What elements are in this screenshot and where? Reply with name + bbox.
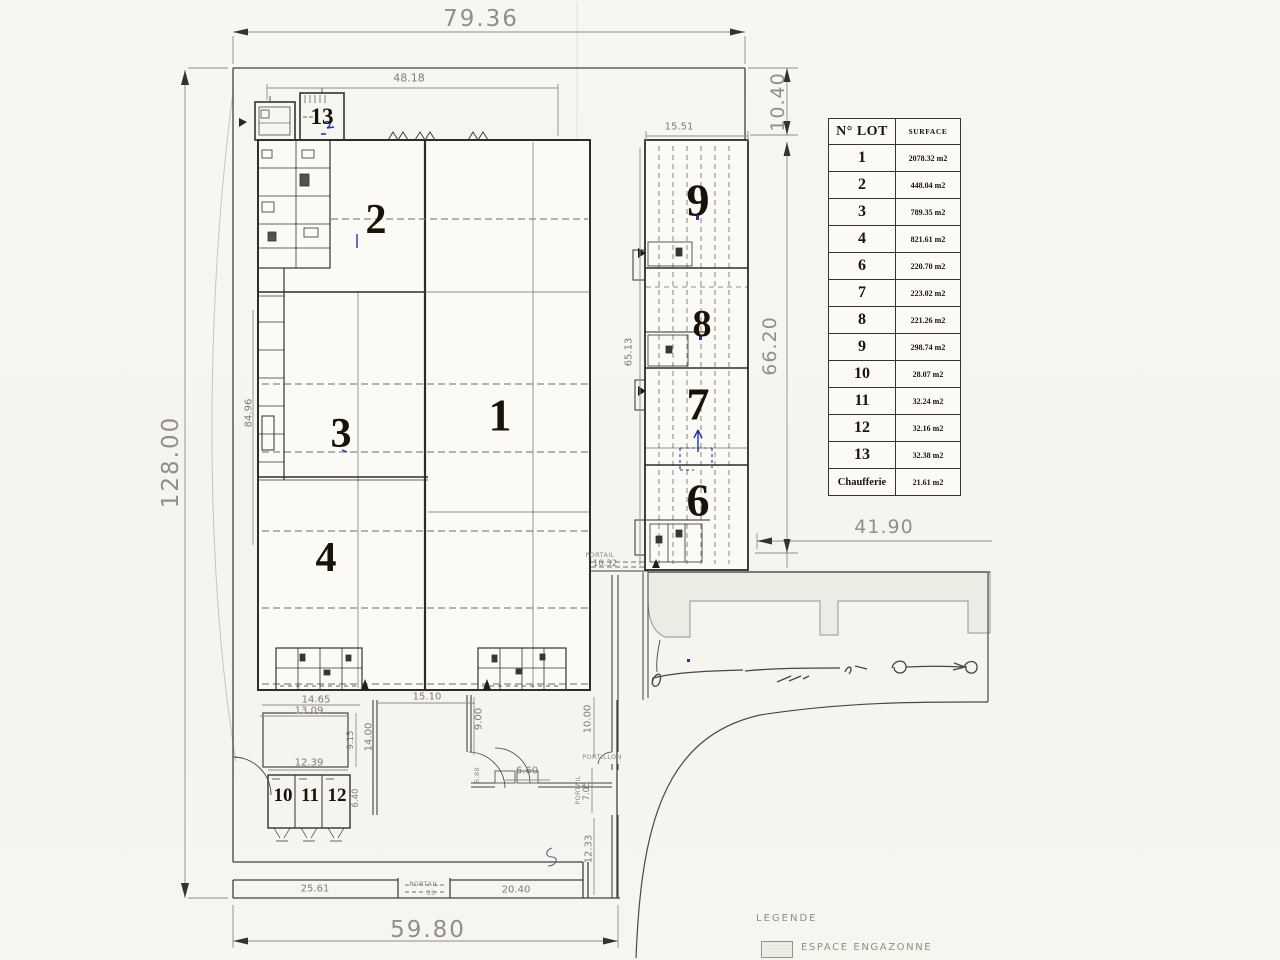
surface-cell: 2078.32 m2 <box>896 145 960 171</box>
lot-cell: 10 <box>829 361 896 387</box>
plan-lot-12: 12 <box>328 785 347 807</box>
legend-item-grass: ESPACE ENGAZONNE <box>801 942 932 953</box>
surface-table: N° LOT SURFACE 12078.32 m2 2448.04 m2 37… <box>828 118 961 496</box>
surface-cell: 32.38 m2 <box>896 442 960 468</box>
plan-lot-2: 2 <box>366 196 387 244</box>
lot-cell: 4 <box>829 226 896 252</box>
grass-strip <box>646 561 990 637</box>
lot-cell: 9 <box>829 334 896 360</box>
table-row: 8221.26 m2 <box>829 306 960 333</box>
dim-6-60: 6.60 <box>516 766 538 777</box>
lot-cell: 2 <box>829 172 896 198</box>
surface-cell: 221.26 m2 <box>896 307 960 333</box>
grass-swatch <box>761 941 793 958</box>
table-row: Chaufferie21.61 m2 <box>829 468 960 495</box>
dim-east-height: 66.20 <box>759 316 781 375</box>
label-portail-east: PORTAIL <box>585 551 614 559</box>
dim-0-35: 35 <box>426 889 435 897</box>
table-row: 3789.35 m2 <box>829 198 960 225</box>
surface-cell: 32.24 m2 <box>896 388 960 414</box>
scanned-site-plan: 79.36 128.00 59.80 10.40 66.20 41.90 48.… <box>0 0 1280 960</box>
dim-15-10: 15.10 <box>413 692 442 703</box>
plan-lot-11: 11 <box>301 785 319 807</box>
dim-bottom-width: 59.80 <box>390 917 466 943</box>
lot-cell: 12 <box>829 415 896 441</box>
dim-east-building-height: 65.13 <box>624 338 635 367</box>
surface-cell: 448.04 m2 <box>896 172 960 198</box>
table-row: 9298.74 m2 <box>829 333 960 360</box>
plan-lot-8: 8 <box>693 302 712 346</box>
lot-cell: 3 <box>829 199 896 225</box>
dim-7-05: 7.05 <box>582 782 592 801</box>
table-row: 6220.70 m2 <box>829 252 960 279</box>
plan-lot-9: 9 <box>687 174 710 227</box>
lot-cell: Chaufferie <box>829 469 896 495</box>
table-row: 1232.16 m2 <box>829 414 960 441</box>
label-portillon: PORTILLON <box>582 753 622 761</box>
dim-9-00: 9.00 <box>474 708 485 730</box>
surface-cell: 223.02 m2 <box>896 280 960 306</box>
surface-cell: 28.07 m2 <box>896 361 960 387</box>
surface-cell: 32.16 m2 <box>896 415 960 441</box>
lot-cell: 6 <box>829 253 896 279</box>
plan-lot-3: 3 <box>331 410 352 458</box>
dim-13-09: 13.09 <box>295 706 324 717</box>
garage-block <box>263 713 350 841</box>
table-row: 1028.07 m2 <box>829 360 960 387</box>
table-row: 12078.32 m2 <box>829 144 960 171</box>
dim-ne-setback: 10.40 <box>767 72 789 131</box>
label-portail-bottom: PORTAIL <box>409 880 438 888</box>
dim-west-building-height: 84.96 <box>244 399 255 428</box>
lot-cell: 13 <box>829 442 896 468</box>
lot-column-header: N° LOT <box>829 119 896 144</box>
table-row: 1332.38 m2 <box>829 441 960 468</box>
dim-left-height: 128.00 <box>158 416 184 508</box>
label-portail-south-gate: PORTAIL <box>574 775 582 804</box>
dim-top-width: 79.36 <box>443 6 519 32</box>
dim-6-40: 6.40 <box>351 789 361 808</box>
chaufferie-building <box>239 96 295 140</box>
dim-14-00: 14.00 <box>364 723 375 752</box>
table-row: 4821.61 m2 <box>829 225 960 252</box>
plan-lot-7: 7 <box>687 378 710 431</box>
surface-cell: 220.70 m2 <box>896 253 960 279</box>
table-row: 1132.24 m2 <box>829 387 960 414</box>
site-plan-drawing <box>0 0 1280 960</box>
dim-5-80: 5.80 <box>473 767 481 783</box>
dim-building-top: 48.18 <box>393 72 425 85</box>
dim-12-33: 12.33 <box>584 835 595 864</box>
surface-cell: 789.35 m2 <box>896 199 960 225</box>
table-header: N° LOT SURFACE <box>829 119 960 144</box>
handwritten-annotations <box>652 640 977 686</box>
main-building <box>258 132 590 690</box>
lot-cell: 1 <box>829 145 896 171</box>
surface-cell: 821.61 m2 <box>896 226 960 252</box>
dim-12-39: 12.39 <box>295 758 324 769</box>
dim-10-32: 10.32 <box>593 559 617 569</box>
legend-title: LEGENDE <box>756 913 817 924</box>
table-row: 7223.02 m2 <box>829 279 960 306</box>
table-row: 2448.04 m2 <box>829 171 960 198</box>
lot-cell: 11 <box>829 388 896 414</box>
dim-25-61: 25.61 <box>301 884 330 895</box>
plan-lot-13: 13 <box>311 104 334 130</box>
dim-9-15: 9.15 <box>346 731 356 750</box>
dim-20-40: 20.40 <box>502 885 531 896</box>
plan-lot-4: 4 <box>316 534 337 582</box>
lot-cell: 7 <box>829 280 896 306</box>
plan-lot-6: 6 <box>687 474 710 527</box>
lot-cell: 8 <box>829 307 896 333</box>
surface-column-header: SURFACE <box>896 119 960 144</box>
plan-lot-10: 10 <box>274 785 293 807</box>
dim-east-building-width: 15.51 <box>665 122 694 133</box>
surface-cell: 21.61 m2 <box>896 469 960 495</box>
dim-east-clearance: 41.90 <box>854 516 913 538</box>
dim-14-65: 14.65 <box>302 695 331 706</box>
plan-lot-1: 1 <box>489 389 512 442</box>
surface-cell: 298.74 m2 <box>896 334 960 360</box>
dim-10-00: 10.00 <box>583 705 594 734</box>
